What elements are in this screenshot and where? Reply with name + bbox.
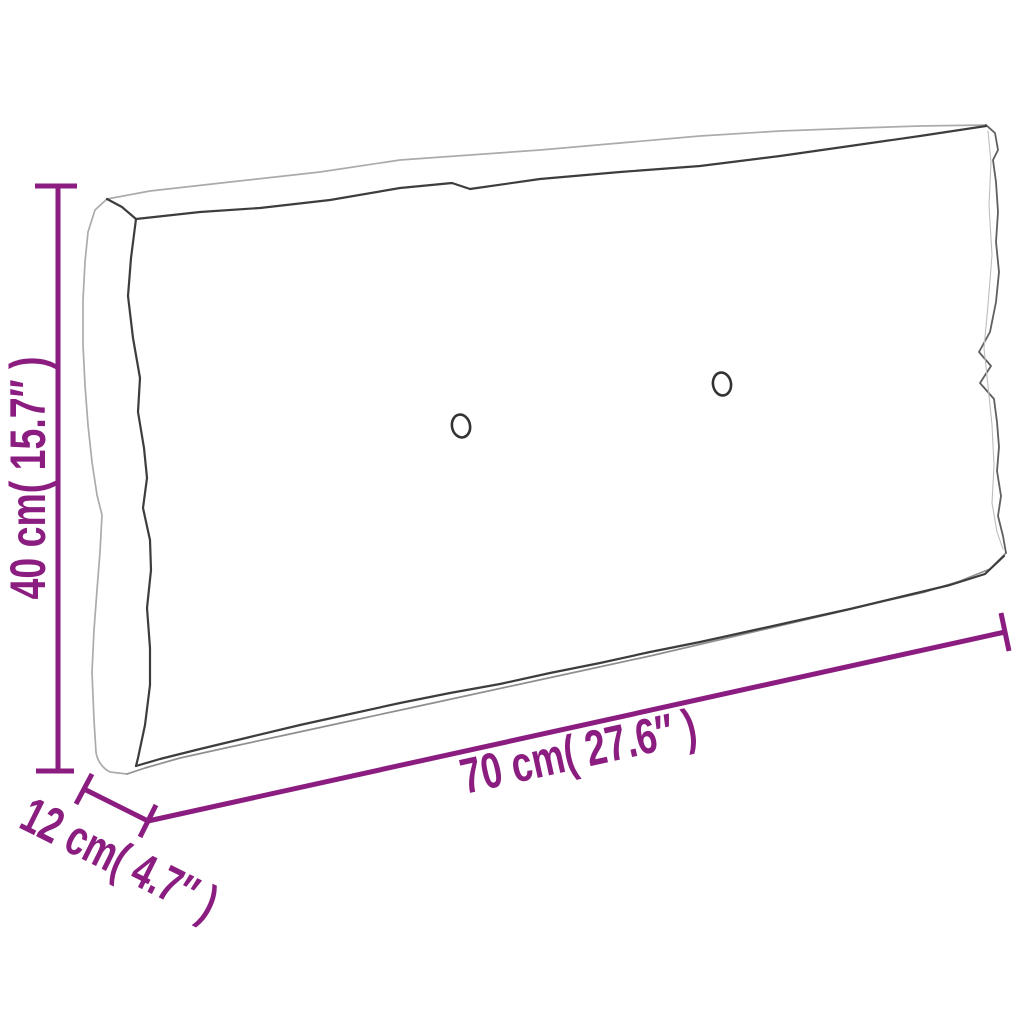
length-dimension-label: 70 cm( 27.6″ ) <box>455 698 701 805</box>
cushion-left-seam <box>128 219 151 766</box>
cushion-drawing <box>83 125 1006 774</box>
cushion-outer-bottom-left-corner <box>96 752 127 774</box>
depth-dimension-left-cap <box>76 774 92 804</box>
cushion-top-seam <box>107 126 986 219</box>
product-dimension-diagram: 40 cm( 15.7″ ) 12 cm( 4.7″ ) 70 cm( 27.6… <box>0 0 1024 1024</box>
height-dimension-label: 40 cm( 15.7″ ) <box>0 357 56 600</box>
tufting-button-left-icon <box>450 413 472 439</box>
length-dimension: 70 cm( 27.6″ ) <box>140 613 1009 837</box>
cushion-outer-left-top-edge <box>83 125 986 752</box>
height-dimension: 40 cm( 15.7″ ) <box>0 186 77 771</box>
tufting-button-right-icon <box>711 371 733 397</box>
depth-dimension: 12 cm( 4.7″ ) <box>12 774 227 931</box>
